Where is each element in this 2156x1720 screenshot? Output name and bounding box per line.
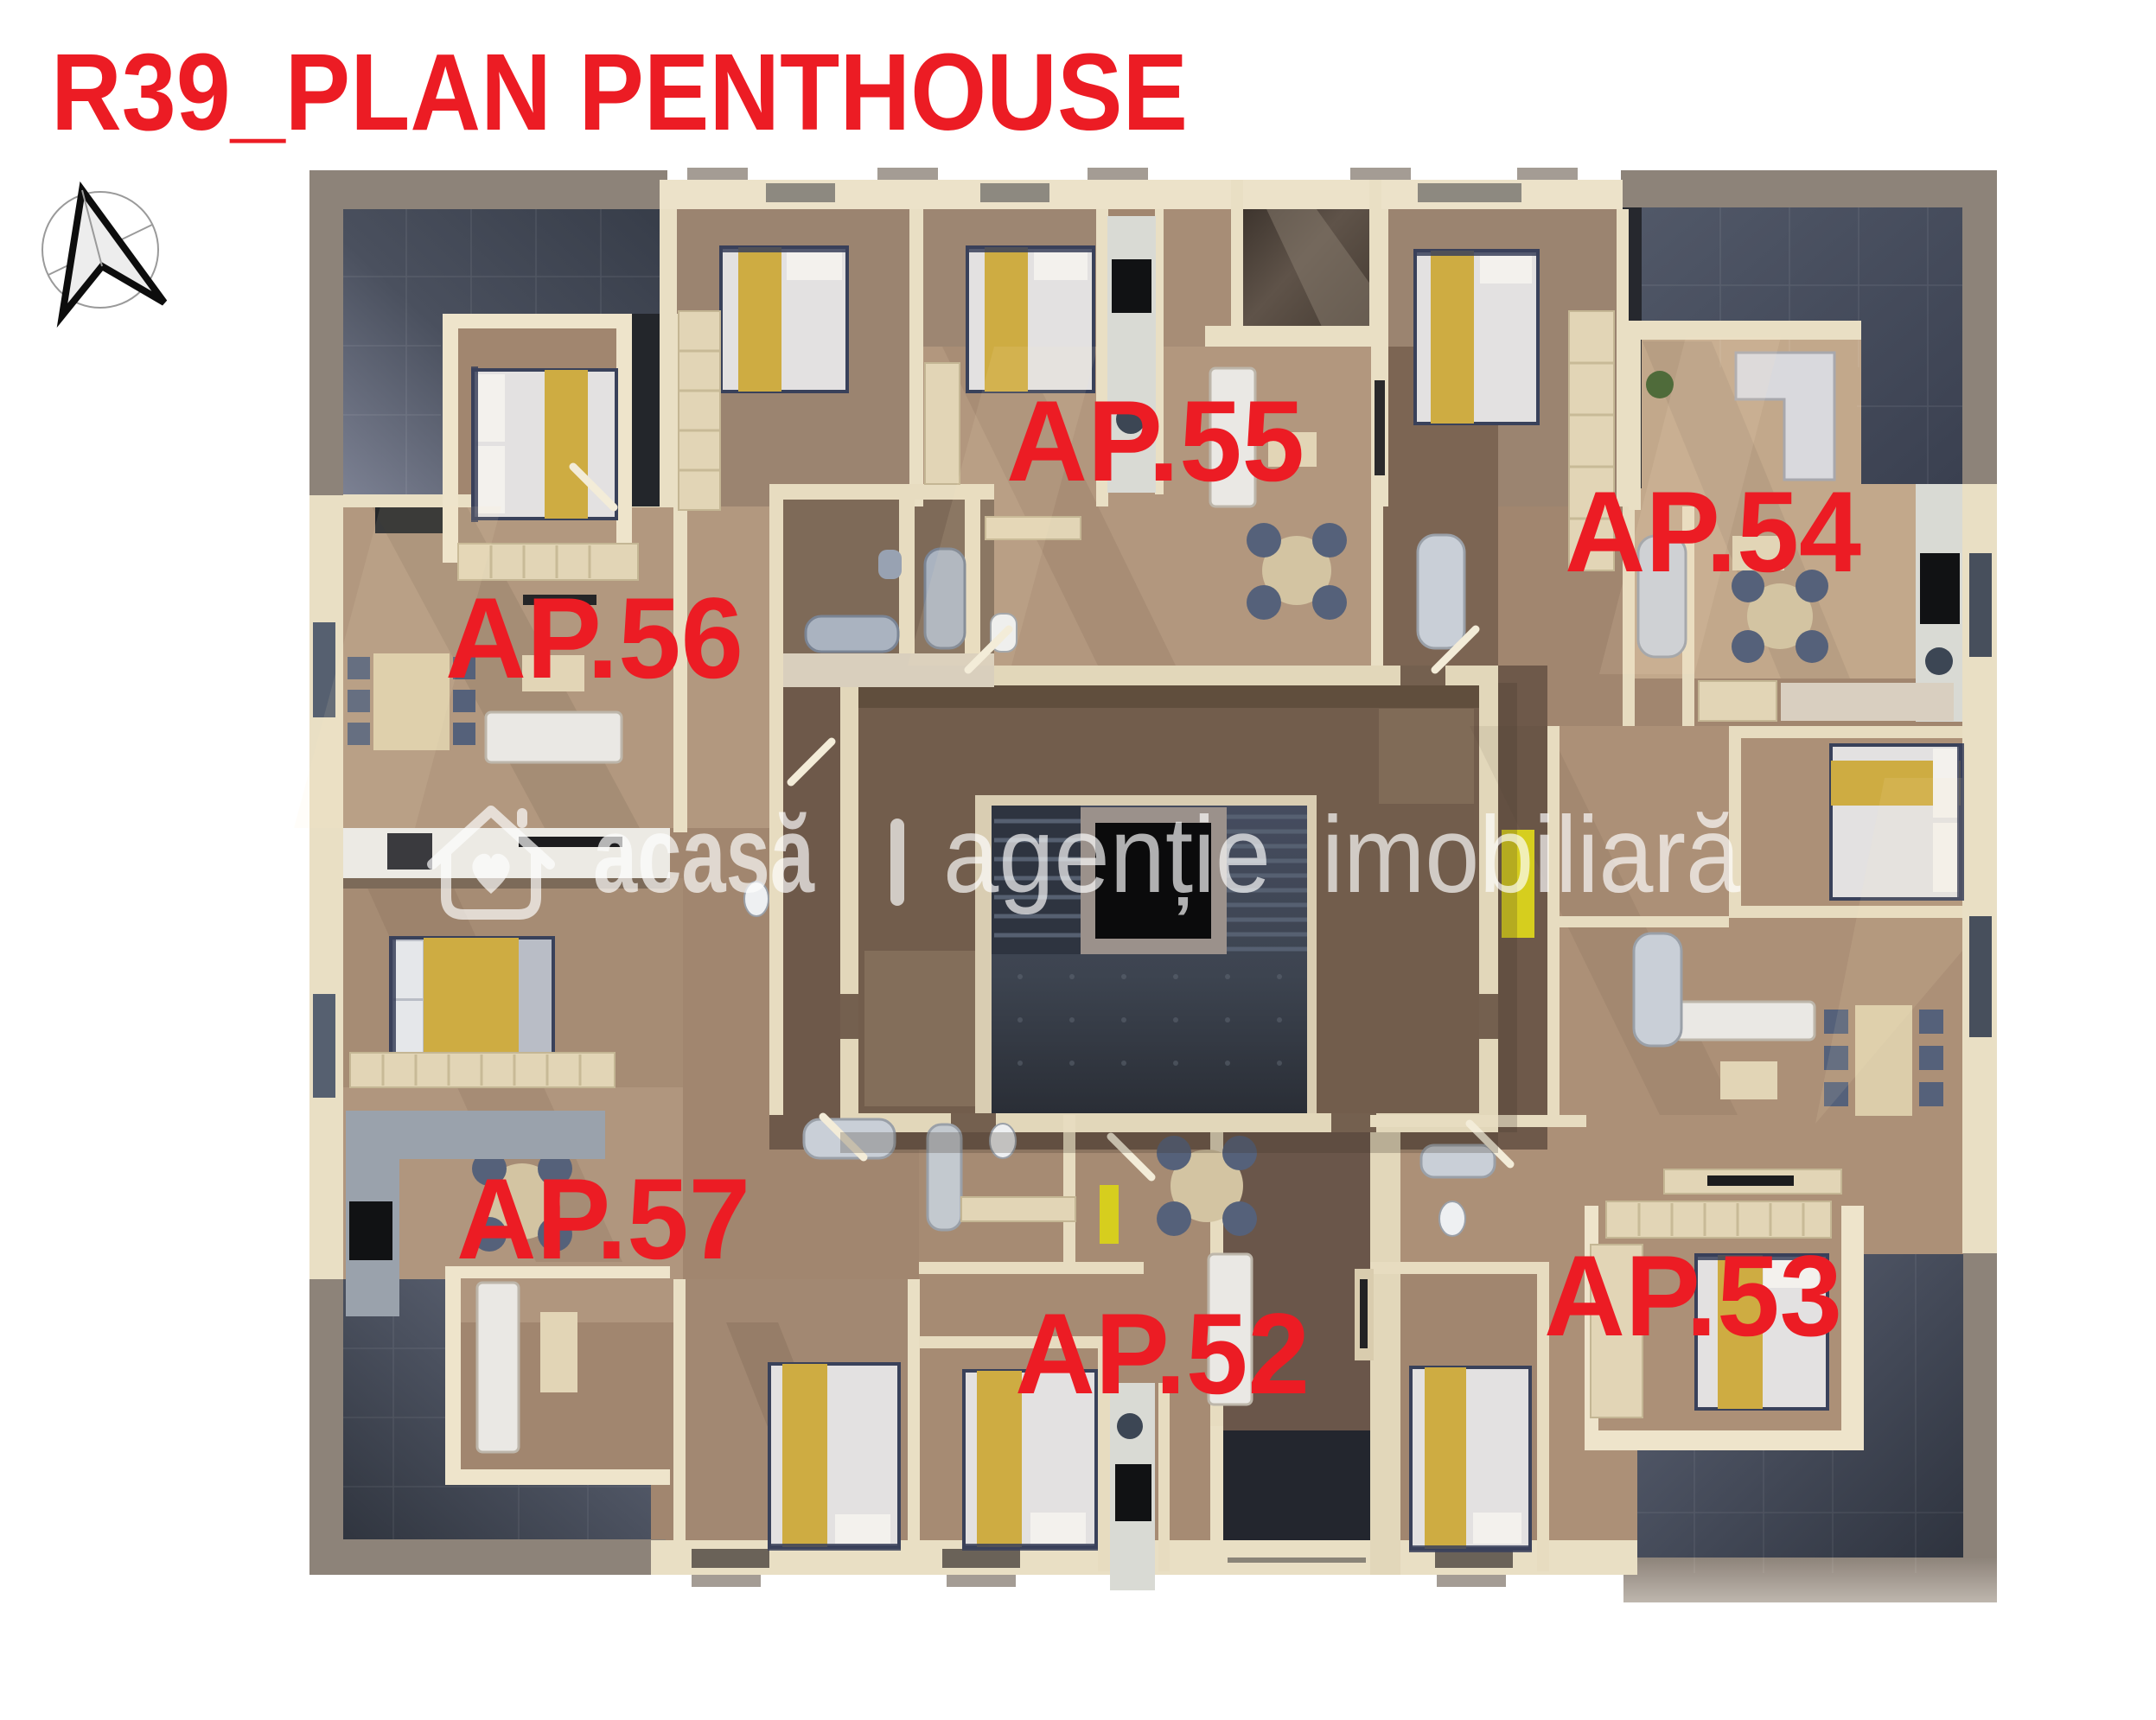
svg-text:AP.53: AP.53 xyxy=(1544,1233,1842,1360)
svg-text:AP.55: AP.55 xyxy=(1006,378,1304,506)
svg-text:agenție: agenție xyxy=(943,795,1271,915)
svg-text:acasă: acasă xyxy=(593,795,815,915)
svg-text:AP.52: AP.52 xyxy=(1015,1290,1310,1418)
svg-text:R39_PLAN PENTHOUSE: R39_PLAN PENTHOUSE xyxy=(51,31,1188,153)
svg-text:AP.57: AP.57 xyxy=(456,1156,750,1284)
svg-text:imobiliară: imobiliară xyxy=(1322,795,1740,915)
svg-text:AP.56: AP.56 xyxy=(445,575,743,703)
svg-text:AP.54: AP.54 xyxy=(1565,468,1861,596)
